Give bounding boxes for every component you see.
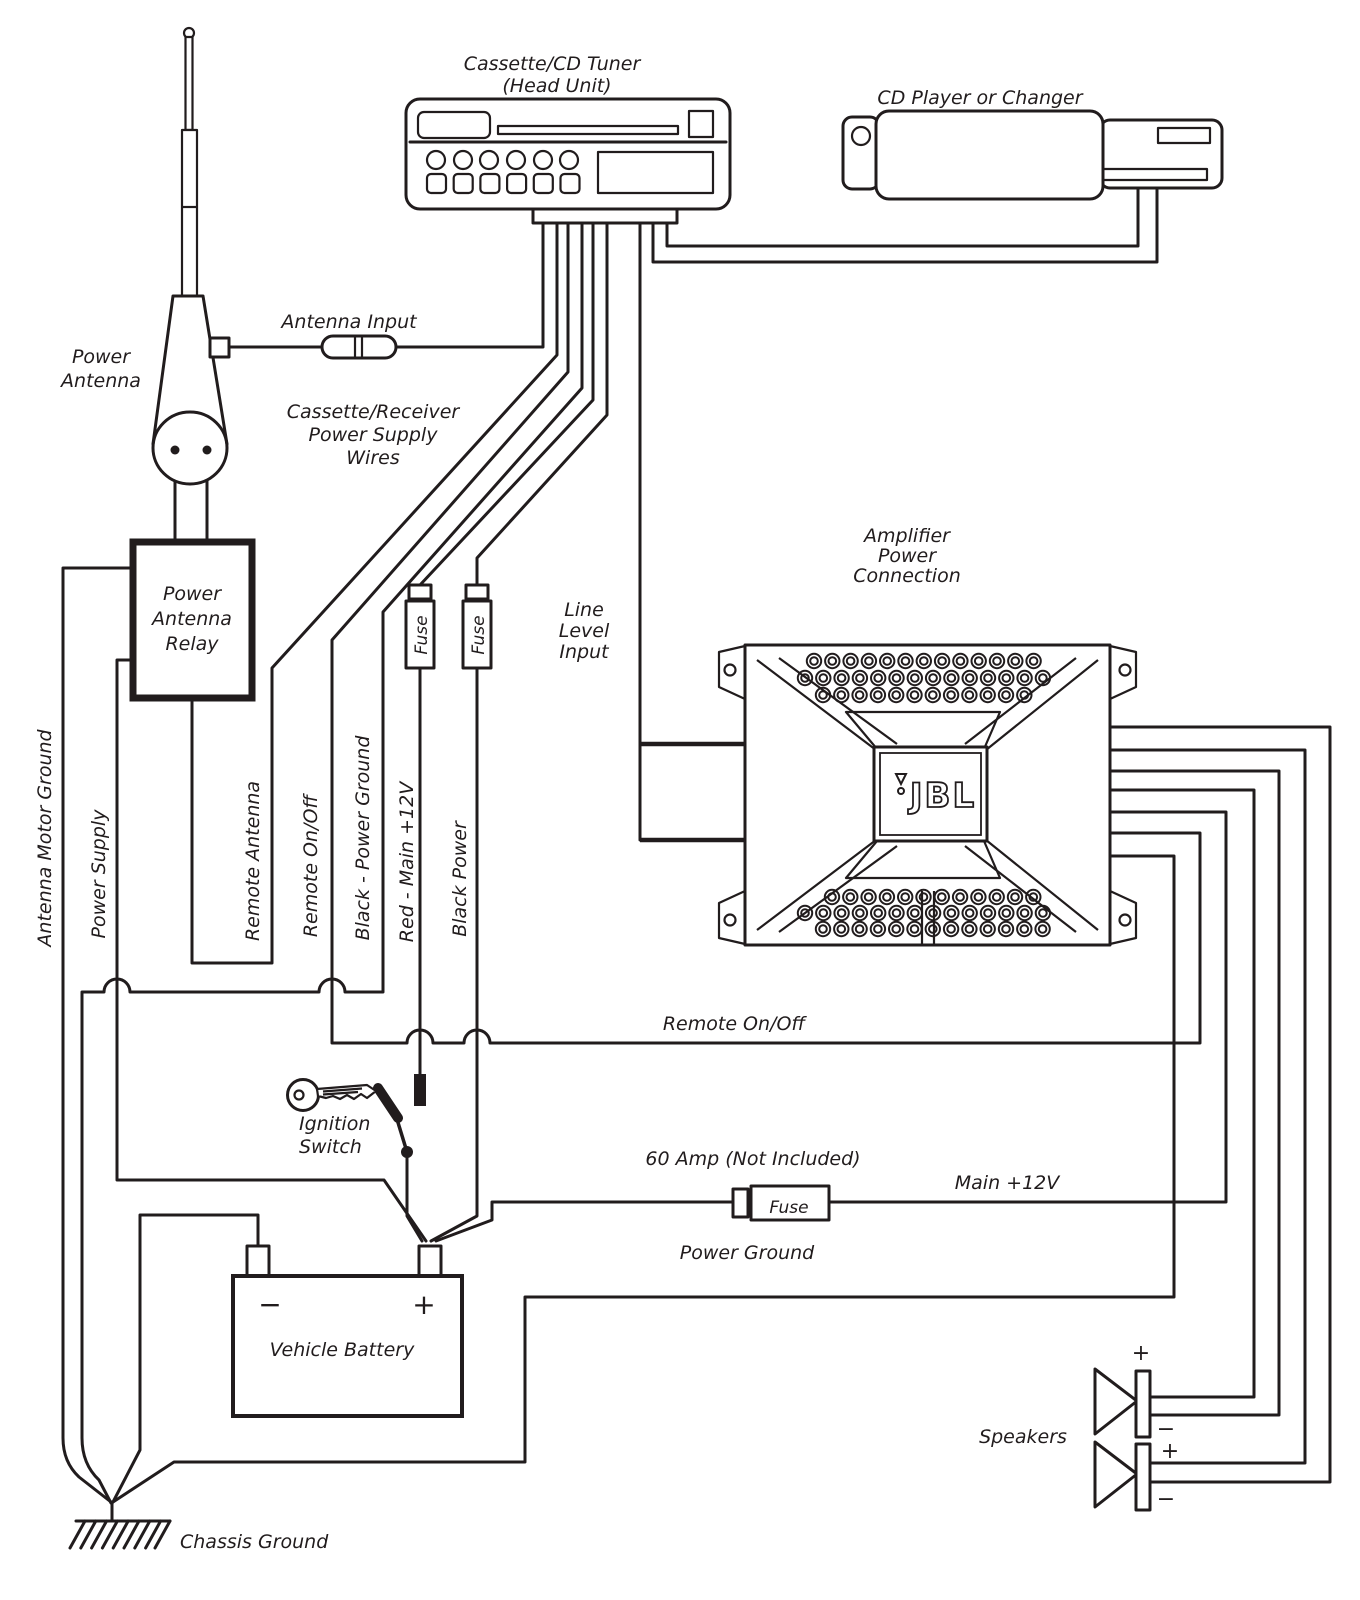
main-12v-label: Main +12V [955, 1172, 1061, 1194]
battery-minus-post [247, 1246, 269, 1277]
wire-label-power-supply: Power Supply [88, 809, 110, 939]
key-icon [288, 1080, 377, 1111]
speaker2-cone [1095, 1442, 1137, 1507]
ignition-label-1: Ignition [299, 1113, 370, 1135]
speaker2-minus: − [1157, 1487, 1175, 1512]
power-antenna [153, 28, 229, 484]
wire-label-black-power: Black Power [449, 820, 471, 937]
battery-plus-post [419, 1246, 441, 1277]
relay-label-3: Relay [165, 633, 219, 655]
amplifier: JBL [719, 645, 1136, 945]
speaker2-plus: + [1161, 1439, 1179, 1464]
line-level-label-1: Line [564, 599, 604, 621]
cd-player [843, 111, 1222, 199]
antenna-connector [322, 336, 396, 358]
head-unit-display [598, 152, 713, 193]
amp-logo: JBL [908, 776, 976, 816]
remote-run-label: Remote On/Off [663, 1013, 808, 1035]
cassette-slot [418, 112, 490, 138]
eject-button [689, 111, 713, 137]
wire-label-remote-on-off: Remote On/Off [300, 793, 322, 938]
wire-label-black-power-ground: Black - Power Ground [352, 735, 374, 941]
antenna-input-label: Antenna Input [279, 311, 418, 333]
battery-plus-sign: + [412, 1288, 435, 1321]
chassis-ground-label: Chassis Ground [180, 1531, 329, 1553]
wire-label-remote-antenna: Remote Antenna [242, 781, 264, 941]
wiring-diagram: JBL Cassette/CD Tu [0, 0, 1360, 1600]
speaker2-magnet [1136, 1444, 1150, 1510]
wire-label-antenna-motor-ground: Antenna Motor Ground [34, 728, 56, 948]
amp-note-2: Power [878, 545, 937, 567]
line-level-label-2: Level [559, 620, 610, 642]
amp-note-1: Amplifier [862, 525, 951, 547]
antenna-base [153, 412, 227, 484]
fuse1-label: Fuse [412, 615, 432, 654]
amp-fuse-label: Fuse [769, 1198, 808, 1218]
power-ground-label: Power Ground [680, 1242, 815, 1264]
amp-fuse-note: 60 Amp (Not Included) [645, 1148, 860, 1170]
chassis-ground-symbol [70, 1502, 170, 1548]
head-unit-connector [533, 209, 677, 223]
head-unit-subtitle: (Head Unit) [502, 75, 611, 97]
supply-note-2: Power Supply [309, 424, 439, 446]
wire-speaker2-minus [1108, 727, 1330, 1482]
wire-speaker1-plus [1108, 790, 1254, 1397]
antenna-rod [182, 130, 197, 296]
wire-ignition-to-battery [407, 1155, 422, 1241]
battery-label: Vehicle Battery [270, 1339, 415, 1361]
relay-label-2: Antenna [150, 608, 232, 630]
relay-label-1: Power [163, 583, 222, 605]
speakers [1095, 1369, 1150, 1510]
diagram-canvas: JBL Cassette/CD Tu [0, 0, 1360, 1600]
ignition-pivot [401, 1146, 413, 1158]
speaker1-magnet [1136, 1371, 1150, 1437]
speaker1-cone [1095, 1369, 1137, 1434]
supply-note-1: Cassette/Receiver [287, 401, 461, 423]
ignition-lever [378, 1088, 398, 1118]
antenna-output-tab [210, 338, 229, 357]
fuse2-label: Fuse [469, 615, 489, 654]
ignition-label-2: Switch [299, 1136, 362, 1158]
power-antenna-label-2: Antenna [59, 370, 141, 392]
wire-antenna-motor-ground [63, 568, 133, 1502]
wire-line-level-stubs [640, 744, 746, 840]
power-antenna-label-1: Power [72, 346, 131, 368]
wire-black-power-lower [431, 668, 477, 1241]
supply-note-3: Wires [346, 447, 400, 469]
vehicle-battery [233, 1246, 462, 1416]
cd-main-body [876, 111, 1103, 199]
amp-note-3: Connection [853, 565, 961, 587]
speakers-label: Speakers [979, 1426, 1067, 1448]
cd-player-label: CD Player or Changer [877, 87, 1083, 109]
wire-label-red-main-12v: Red - Main +12V [396, 780, 418, 942]
ignition-contact [414, 1074, 426, 1106]
cd-slot [498, 126, 678, 134]
battery-minus-sign: − [258, 1288, 281, 1321]
head-unit-title: Cassette/CD Tuner [464, 53, 642, 75]
head-unit [406, 99, 730, 223]
line-level-label-3: Input [559, 641, 610, 663]
speaker1-plus: + [1132, 1341, 1150, 1366]
antenna-rod-thin [186, 37, 193, 130]
